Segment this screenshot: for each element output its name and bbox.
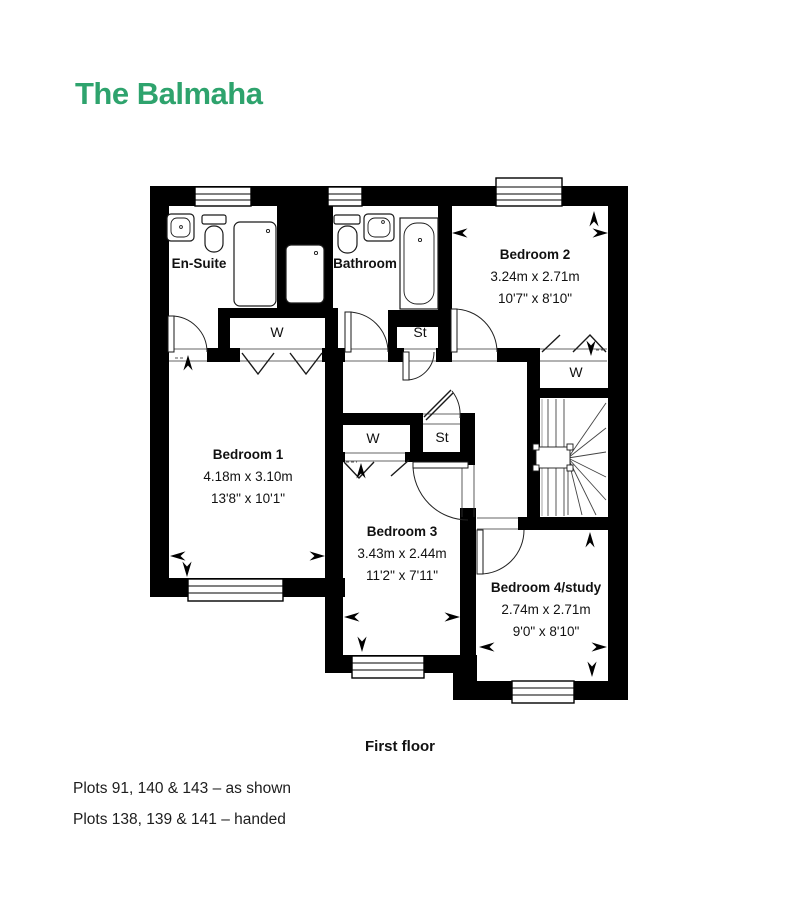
floorplan-page: The Balmaha (0, 0, 800, 900)
bedroom1-window (188, 579, 283, 601)
bathroom-window (328, 187, 362, 206)
wardrobe1-doors (242, 353, 322, 374)
bedroom2-imperial: 10'7" x 8'10" (498, 291, 572, 306)
bedroom4-door (477, 530, 524, 574)
floor-label: First floor (0, 738, 800, 755)
store1-label: St (413, 324, 426, 340)
bedroom4-imperial: 9'0" x 8'10" (513, 624, 580, 639)
bedroom1-imperial: 13'8" x 10'1" (211, 491, 285, 506)
store1-door (403, 352, 434, 380)
landing-shower (286, 245, 324, 303)
wardrobe1-label: W (270, 324, 284, 340)
ensuite-label: En-Suite (172, 256, 227, 271)
bedroom1-label: Bedroom 1 (213, 447, 284, 462)
bedroom4-window (512, 681, 574, 703)
wardrobe2-label: W (569, 364, 583, 380)
wardrobe2-doors (542, 335, 606, 352)
bedroom2-metric: 3.24m x 2.71m (490, 269, 579, 284)
bedroom3-label: Bedroom 3 (367, 524, 438, 539)
ensuite-sink (167, 214, 194, 241)
bedroom2-window (496, 178, 562, 206)
wardrobe3-label: W (366, 430, 380, 446)
bathroom-door (345, 312, 388, 352)
bathroom-toilet (334, 215, 360, 253)
ensuite-shower (234, 222, 276, 306)
bedroom4-metric: 2.74m x 2.71m (501, 602, 590, 617)
bedroom2-label: Bedroom 2 (500, 247, 571, 262)
plots-as-shown: Plots 91, 140 & 143 – as shown (73, 780, 291, 798)
store2-door (424, 390, 460, 420)
staircase (533, 399, 606, 516)
plots-handed: Plots 138, 139 & 141 – handed (73, 811, 286, 829)
bathtub (400, 218, 438, 309)
bedroom1-metric: 4.18m x 3.10m (203, 469, 292, 484)
bedroom3-metric: 3.43m x 2.44m (357, 546, 446, 561)
floorplan-drawing: En-Suite Bathroom Bedroom 2 3.24m x 2.71… (0, 0, 800, 900)
bedroom2-door (451, 309, 497, 352)
ensuite-window (195, 187, 251, 206)
bedroom4-label: Bedroom 4/study (491, 580, 602, 595)
ensuite-door (168, 316, 207, 352)
bedroom3-imperial: 11'2" x 7'11" (366, 568, 438, 583)
ensuite-toilet (202, 215, 226, 252)
bedroom3-door (413, 462, 468, 520)
bedroom3-window (352, 656, 424, 678)
bathroom-sink (364, 214, 394, 241)
bathroom-label: Bathroom (333, 256, 397, 271)
wardrobe3-doors (344, 460, 409, 478)
store2-label: St (435, 429, 448, 445)
